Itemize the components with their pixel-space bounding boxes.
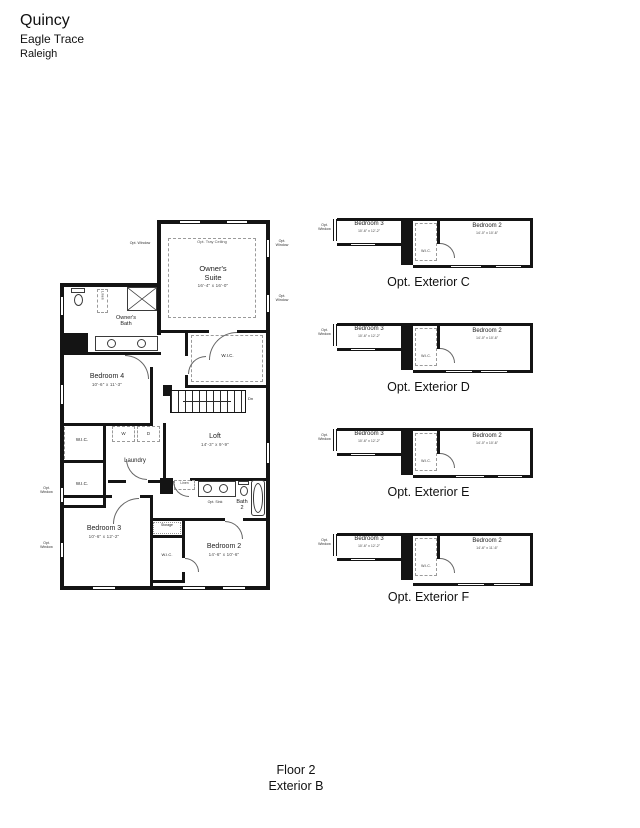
option-bedroom2-dims: 14'-0" x 10'-6": [451, 231, 523, 235]
option-exterior-d: Opt. Window W.I.C. Bedroom 3 10'-6" x 12…: [316, 320, 544, 412]
loft-name: Loft: [175, 433, 255, 441]
washer-label: W: [113, 431, 134, 436]
dryer-label: D: [138, 431, 159, 436]
option-bedroom3-dims: 10'-6" x 12'-2": [338, 229, 400, 233]
option-exterior-e: Opt. Window W.I.C. Bedroom 3 10'-6" x 12…: [316, 425, 544, 517]
option-bedroom2-dims: 14'-0" x 10'-6": [451, 441, 523, 445]
toilet2-bowl-icon: [240, 486, 248, 496]
window-right-1: [266, 240, 270, 257]
option-bedroom3-label: Bedroom 3 10'-6" x 12'-2": [338, 221, 400, 233]
option-wic-outline: [415, 538, 437, 576]
option-wic-outline: [415, 433, 437, 471]
option-bedroom2-label: Bedroom 2 14'-0" x 10'-6": [451, 433, 523, 445]
owners-bath-name-2: Bath: [107, 321, 145, 327]
option-window-b3: [351, 243, 375, 246]
wall-bed3-right: [150, 495, 153, 586]
wall-bath-bottom: [60, 352, 161, 355]
window-left-bath: [60, 297, 64, 315]
option-door-arc: [440, 243, 455, 258]
window-left-bed4: [60, 385, 64, 404]
option-bedroom3-label: Bedroom 3 10'-6" x 12'-2": [338, 431, 400, 443]
option-window: [333, 324, 337, 346]
window-left-opt-2: [60, 543, 64, 557]
option-wall-b2-right: [530, 428, 533, 478]
linen-closet-bath: Linen: [97, 289, 108, 313]
option-wic-label: W.I.C.: [413, 249, 439, 253]
option-bedroom3-name: Bedroom 3: [338, 221, 400, 228]
option-caption: Opt. Exterior D: [316, 380, 541, 394]
option-wall-b2-right: [530, 533, 533, 586]
opt-window-label: Opt. Window: [316, 433, 333, 442]
sink-icon-1: [107, 339, 116, 348]
floor-plan-sheet: Quincy Eagle Trace Raleigh: [0, 0, 640, 828]
window-bed2-bottom-1: [183, 586, 205, 590]
opt-window-label: Opt. Window: [316, 223, 333, 232]
opt-sink-label: Opt. Sink: [205, 500, 225, 504]
option-door-arc: [440, 558, 455, 573]
option-wall-wic-right: [437, 533, 440, 559]
option-window-b2-1: [451, 265, 481, 268]
option-exterior-f: Opt. Window W.I.C. Bedroom 3 10'-6" x 12…: [316, 530, 544, 622]
option-bedroom3-dims: 10'-6" x 12'-2": [338, 544, 400, 548]
option-wic-label: W.I.C.: [413, 354, 439, 358]
wall-bath2-chunk: [160, 478, 173, 494]
loft-label: Loft 14'-3" x 9'-9": [175, 433, 255, 447]
wic1-rod: [64, 427, 103, 459]
main-floor-plan: Opt. Window Opt. Window Opt. Window Opt.…: [55, 215, 295, 600]
loft-dims: 14'-3" x 9'-9": [175, 442, 255, 447]
bedroom4-dims: 10'-6" x 11'-3": [67, 382, 147, 387]
window-right-loft: [266, 443, 270, 463]
option-bedroom3-name: Bedroom 3: [338, 431, 400, 438]
bedroom2-name: Bedroom 2: [183, 543, 265, 551]
bedroom3-label: Bedroom 3 10'-6" x 12'-2": [60, 525, 148, 539]
option-wall-b2-right: [530, 323, 533, 373]
option-wall-chunk: [401, 536, 413, 580]
wall-suite-bottom-a: [157, 330, 209, 333]
wall-bed3-top-b: [140, 495, 150, 498]
toilet2-tank-icon: [238, 481, 249, 485]
option-exterior-c: Opt. Window W.I.C. Bedroom 3 10'-6" x 12…: [316, 215, 544, 307]
option-window-b2-1: [446, 370, 472, 373]
wall-wic-mid: [60, 460, 106, 463]
sink-icon-4: [219, 484, 228, 493]
option-wall-chunk: [401, 326, 413, 370]
wall-bath2-bottom-b: [243, 518, 266, 521]
wall-right: [266, 220, 270, 590]
opt-window-label-suite-left: Opt. Window: [127, 241, 153, 245]
wall-wic2-bottom: [60, 505, 106, 508]
door-arc-bedroom2: [225, 521, 243, 539]
toilet-bowl-icon: [74, 294, 83, 306]
wall-wicbed2-bottom: [150, 580, 185, 583]
city-name: Raleigh: [20, 48, 84, 60]
window-right-2: [266, 295, 270, 312]
option-bedroom3-name: Bedroom 3: [338, 536, 400, 543]
wic-bed2-label: W.I.C.: [151, 553, 183, 558]
option-wic-label: W.I.C.: [413, 459, 439, 463]
wall-bath2-bottom-a: [150, 518, 225, 521]
wall-bed3-top-a: [60, 495, 112, 498]
option-wall-b3-bottom-a: [337, 348, 351, 351]
option-wall-b2-top: [413, 323, 533, 326]
wall-laundry-right: [163, 423, 166, 483]
owners-suite-dims: 16'-4" x 16'-0": [173, 283, 253, 288]
option-bedroom2-dims: 14'-6" x 11'-6": [451, 546, 523, 550]
option-wall-wic-right: [437, 218, 440, 244]
door-arc-bath2: [173, 481, 189, 497]
option-window-b2-2: [496, 265, 521, 268]
option-bedroom3-label: Bedroom 3 10'-6" x 12'-2": [338, 326, 400, 338]
title-block: Quincy Eagle Trace Raleigh: [20, 12, 84, 60]
bedroom3-dims: 10'-6" x 12'-2": [60, 534, 148, 539]
option-bedroom2-label: Bedroom 2 14'-0" x 10'-6": [451, 223, 523, 235]
wall-storage-bottom: [150, 535, 185, 538]
option-bedroom2-label: Bedroom 2 14'-6" x 11'-6": [451, 538, 523, 550]
option-bedroom2-name: Bedroom 2: [451, 223, 523, 230]
washer-box: W: [112, 426, 135, 442]
owners-suite-label: Owner's Suite 16'-4" x 16'-0": [173, 265, 253, 288]
option-window-b2-1: [458, 583, 484, 586]
community-name: Eagle Trace: [20, 32, 84, 46]
option-door-arc: [440, 348, 455, 363]
option-caption: Opt. Exterior E: [316, 485, 541, 499]
option-door-arc: [440, 453, 455, 468]
door-arc-bedroom4: [125, 355, 149, 379]
plan-title: Quincy: [20, 12, 84, 30]
option-wall-b3-bottom-a: [337, 243, 351, 246]
window-bed2-bottom-2: [223, 586, 245, 590]
wall-bed4-right: [150, 367, 153, 426]
wic1-label: W.I.C.: [63, 437, 101, 442]
footer-exterior: Exterior B: [0, 779, 592, 793]
bedroom2-dims: 14'-6" x 10'-6": [183, 552, 265, 557]
option-caption: Opt. Exterior F: [316, 590, 541, 604]
option-wall-chunk: [401, 221, 413, 265]
linen-label-bath: Linen: [101, 291, 105, 300]
option-bedroom3-dims: 10'-6" x 12'-2": [338, 439, 400, 443]
opt-window-label-right-1: Opt. Window: [272, 239, 292, 248]
footer-floor: Floor 2: [0, 763, 592, 777]
option-window-b2-2: [498, 475, 522, 478]
option-wall-b3-bottom-a: [337, 453, 351, 456]
option-window-b2-1: [456, 475, 484, 478]
door-arc-laundry: [126, 459, 147, 480]
bedroom2-label: Bedroom 2 14'-6" x 10'-6": [183, 543, 265, 557]
owners-suite-name-2: Suite: [173, 274, 253, 283]
wall-suite-bottom-b: [237, 330, 266, 333]
sink-icon-3: [203, 484, 212, 493]
opt-window-label-left-2: Opt. Window: [38, 541, 55, 550]
option-caption: Opt. Exterior C: [316, 275, 541, 289]
option-window-b3: [351, 348, 375, 351]
wic2-label: W.I.C.: [63, 481, 101, 486]
option-wall-b2-top: [413, 428, 533, 431]
wall-suite-left: [157, 220, 161, 335]
bath2-name-2: 2: [231, 505, 253, 511]
option-wic-outline: [415, 223, 437, 261]
wall-wicstairs-bottom: [185, 385, 266, 388]
window-left-opt-1: [60, 488, 64, 502]
option-wall-chunk: [401, 431, 413, 475]
option-window-b2-2: [481, 370, 507, 373]
option-wall-wic-right: [437, 323, 440, 349]
footer-caption: Floor 2 Exterior B: [0, 763, 592, 793]
stairs-dn-label: Dn: [248, 397, 262, 402]
window-suite-top-2: [227, 220, 247, 224]
option-window-b3: [351, 453, 375, 456]
option-bedroom3-name: Bedroom 3: [338, 326, 400, 333]
option-bedroom2-label: Bedroom 2 14'-0" x 10'-6": [451, 328, 523, 340]
owners-bath-label: Owner's Bath: [107, 315, 145, 328]
option-wic-outline: [415, 328, 437, 366]
option-bedroom3-dims: 10'-6" x 12'-2": [338, 334, 400, 338]
option-bedroom2-name: Bedroom 2: [451, 433, 523, 440]
shower-icon: [127, 287, 157, 311]
stairs-direction-line: [183, 401, 231, 402]
option-bedroom2-name: Bedroom 2: [451, 538, 523, 545]
option-bedroom2-dims: 14'-0" x 10'-6": [451, 336, 523, 340]
option-wic-label: W.I.C.: [413, 564, 439, 568]
opt-window-label: Opt. Window: [316, 538, 333, 547]
opt-window-label-right-2: Opt. Window: [272, 294, 292, 303]
option-wall-b2-right: [530, 218, 533, 268]
wall-laundry-bottom-a: [108, 480, 126, 483]
opt-window-label: Opt. Window: [316, 328, 333, 337]
bedroom3-name: Bedroom 3: [60, 525, 148, 533]
option-window: [333, 219, 337, 241]
bath2-label: Bath 2: [231, 499, 253, 512]
wall-wicstairs-left-a: [185, 330, 188, 356]
door-arc-wic-bed2: [185, 558, 199, 572]
option-wall-b2-top: [413, 533, 533, 536]
sink-icon-2: [137, 339, 146, 348]
option-window: [333, 429, 337, 451]
option-window-b3: [351, 558, 375, 561]
option-wall-b2-bottom: [413, 370, 533, 373]
storage-label: Storage: [151, 524, 183, 528]
option-wall-b2-top: [413, 218, 533, 221]
dryer-box: D: [137, 426, 160, 442]
door-arc-bedroom3: [113, 498, 139, 524]
window-bed3-bottom: [93, 586, 115, 590]
wall-suite-top: [157, 220, 270, 224]
tray-ceiling-label: Opt. Tray Ceiling: [168, 240, 256, 245]
option-bedroom3-label: Bedroom 3 10'-6" x 12'-2": [338, 536, 400, 548]
option-window-b2-2: [494, 583, 520, 586]
tub-basin-icon: [253, 483, 263, 513]
option-bedroom2-name: Bedroom 2: [451, 328, 523, 335]
opt-window-label-left-1: Opt. Window: [38, 486, 55, 495]
window-suite-top-1: [180, 220, 200, 224]
option-window: [333, 534, 337, 556]
wall-stair-void: [60, 333, 88, 352]
toilet-tank-icon: [71, 288, 85, 293]
vanity-owners-bath: [95, 336, 158, 351]
option-wall-wic-right: [437, 428, 440, 454]
option-wall-b3-bottom-a: [337, 558, 351, 561]
